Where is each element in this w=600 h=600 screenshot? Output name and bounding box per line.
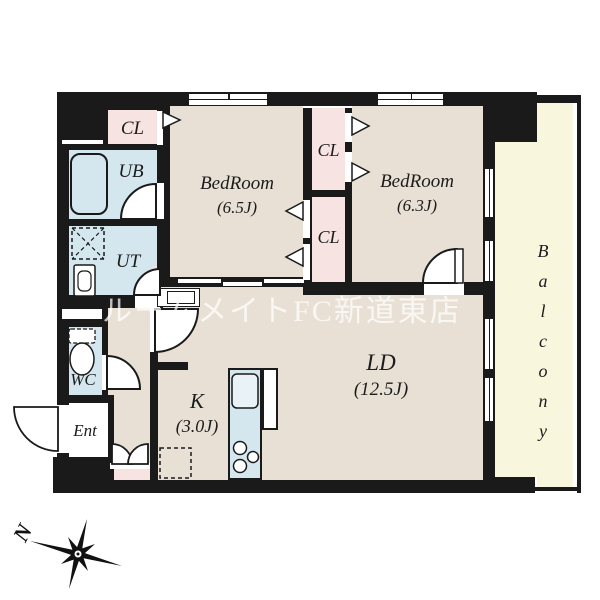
stove-burner bbox=[234, 442, 247, 455]
closet-arrow-icon bbox=[286, 248, 303, 266]
bathtub bbox=[71, 154, 107, 214]
label-bedroom-1: BedRoom (6.5J) bbox=[172, 172, 302, 219]
bedroom-2-size: (6.3J) bbox=[352, 195, 482, 217]
label-closet-mid-upper: CL bbox=[310, 139, 347, 162]
label-bedroom-2: BedRoom (6.3J) bbox=[352, 170, 482, 217]
label-living-dining: LD (12.5J) bbox=[316, 348, 446, 403]
label-entrance: Ent bbox=[62, 420, 108, 442]
bath-door-swing bbox=[121, 184, 156, 219]
fridge-space bbox=[160, 448, 191, 478]
stove-burner bbox=[234, 460, 247, 473]
closet-arrow-icon bbox=[352, 117, 369, 135]
shoe-cabinet-door-right bbox=[128, 444, 148, 464]
label-toilet: WC bbox=[64, 369, 102, 391]
closet-arrow-icon bbox=[163, 112, 180, 128]
living-dining-size: (12.5J) bbox=[316, 378, 446, 403]
label-utility: UT bbox=[100, 250, 156, 275]
label-balcony: Balcony bbox=[521, 241, 553, 451]
label-closet-entry: CL bbox=[108, 117, 157, 142]
toilet-tank bbox=[69, 329, 95, 343]
label-closet-mid-lower: CL bbox=[310, 226, 347, 249]
toilet-door-swing bbox=[107, 356, 140, 389]
bedroom2-door-leaf bbox=[455, 249, 463, 283]
floor-plan: CL UB UT WC Ent BedRoom (6.5J) BedRoom (… bbox=[0, 0, 600, 600]
label-unit-bath: UB bbox=[105, 160, 157, 185]
plan-graphics bbox=[0, 0, 600, 600]
hall-door-swing bbox=[155, 309, 198, 352]
kitchen-size: (3.0J) bbox=[152, 415, 242, 438]
kitchen-name: K bbox=[152, 388, 242, 415]
stove-burner bbox=[248, 452, 259, 463]
bedroom-1-size: (6.5J) bbox=[172, 197, 302, 219]
bedroom-1-name: BedRoom bbox=[172, 172, 302, 197]
bedroom2-door-swing bbox=[423, 249, 457, 283]
living-dining-name: LD bbox=[316, 348, 446, 378]
label-kitchen: K (3.0J) bbox=[152, 388, 242, 439]
compass-hub-dot bbox=[77, 553, 80, 556]
bedroom-2-name: BedRoom bbox=[352, 170, 482, 195]
entrance-door-swing bbox=[14, 407, 58, 451]
